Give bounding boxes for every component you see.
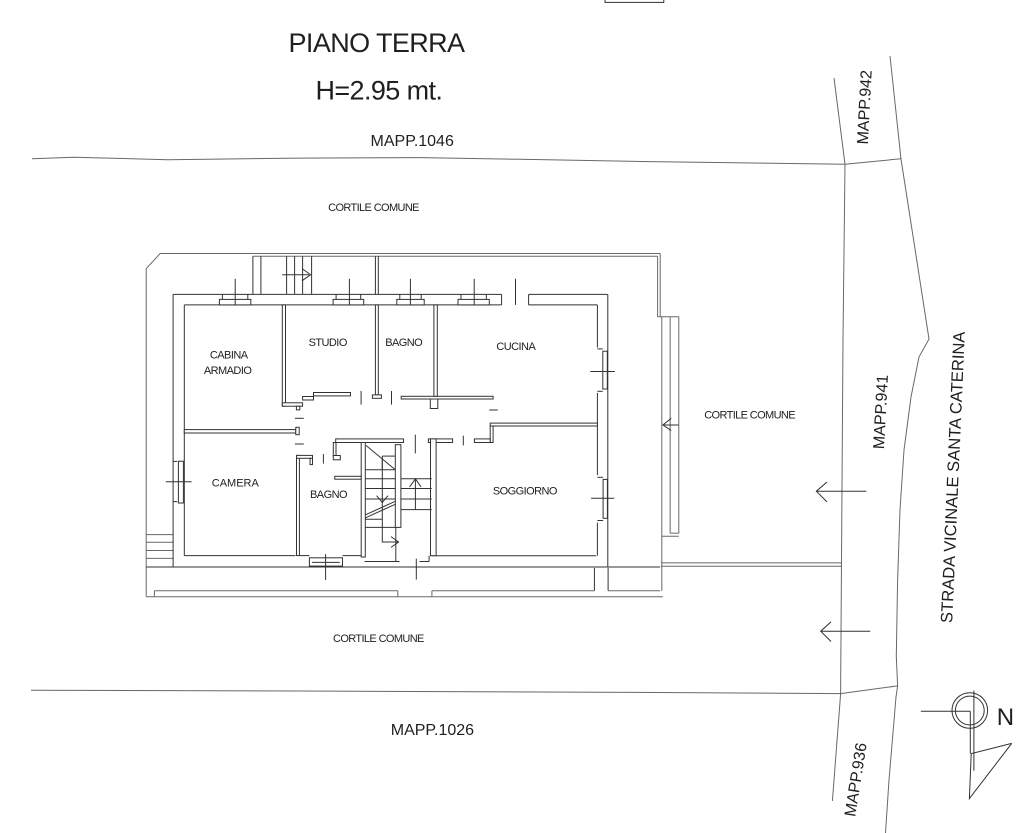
svg-text:ARMADIO: ARMADIO — [204, 365, 252, 377]
svg-text:MAPP.1026: MAPP.1026 — [391, 722, 474, 739]
svg-text:MAPP.1046: MAPP.1046 — [371, 133, 454, 150]
svg-text:CORTILE COMUNE: CORTILE COMUNE — [333, 633, 424, 645]
svg-text:CORTILE COMUNE: CORTILE COMUNE — [704, 410, 795, 422]
svg-text:CUCINA: CUCINA — [496, 341, 536, 353]
svg-text:SOGGIORNO: SOGGIORNO — [493, 486, 558, 498]
svg-text:N: N — [997, 704, 1014, 731]
svg-text:BAGNO: BAGNO — [385, 337, 423, 349]
svg-text:CAMERA: CAMERA — [212, 478, 260, 490]
svg-text:CABINA: CABINA — [210, 349, 249, 361]
svg-text:H=2.95 mt.: H=2.95 mt. — [315, 76, 442, 106]
svg-text:STUDIO: STUDIO — [309, 337, 348, 349]
svg-text:CORTILE COMUNE: CORTILE COMUNE — [328, 202, 419, 214]
svg-text:BAGNO: BAGNO — [310, 489, 348, 501]
svg-text:PIANO TERRA: PIANO TERRA — [289, 28, 466, 58]
